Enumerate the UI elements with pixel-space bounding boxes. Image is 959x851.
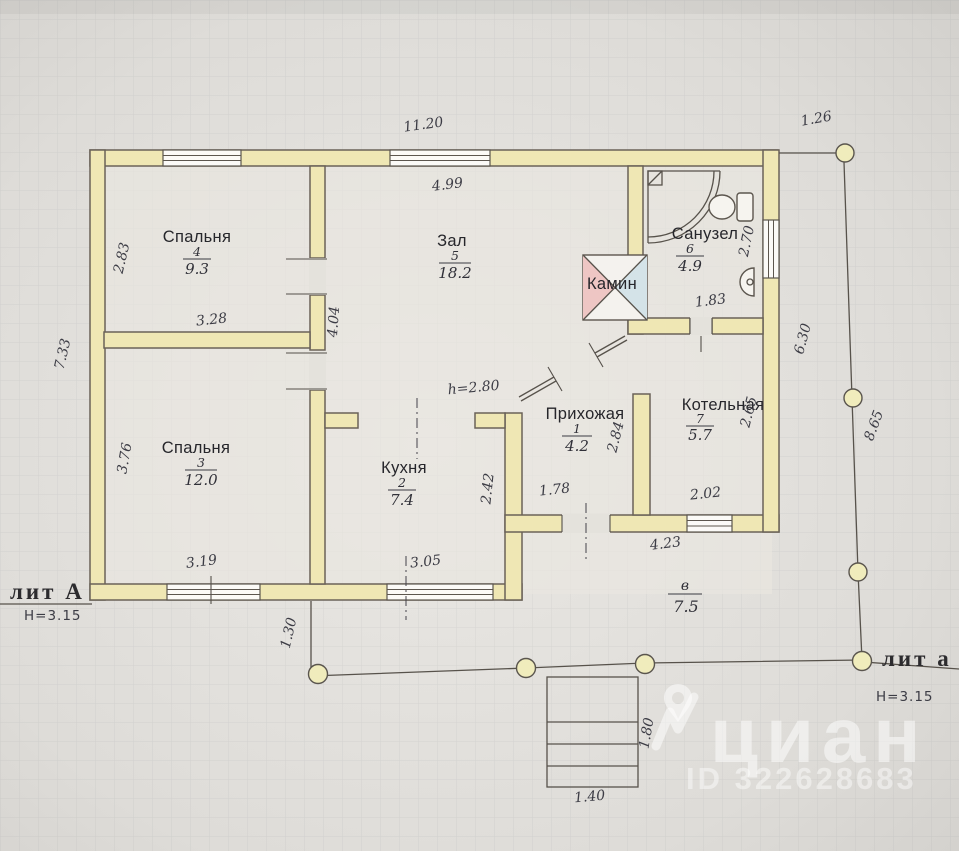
- room-area: 4.2: [564, 437, 589, 455]
- porch-column: [849, 563, 867, 581]
- room-area: 4.9: [677, 257, 702, 275]
- room-area: 7.4: [390, 491, 414, 509]
- dim-label: 1.40: [573, 788, 606, 807]
- porch-column: [517, 659, 536, 678]
- room-number: 3: [197, 455, 205, 470]
- window: [763, 220, 779, 278]
- room-number: 7: [696, 411, 704, 426]
- watermark-id: ID 322628683: [686, 761, 917, 796]
- wall-segment: [505, 413, 522, 600]
- porch-column: [844, 389, 862, 407]
- dim-label: 3.28: [195, 310, 228, 329]
- wall-segment: [325, 413, 358, 428]
- room-area: 12.0: [184, 471, 218, 489]
- room-name: Санузел: [672, 225, 738, 243]
- litera-main-height: Н=3.15: [24, 608, 82, 624]
- wall-segment: [763, 150, 779, 532]
- room-number: 1: [573, 421, 581, 436]
- room-area: 18.2: [438, 264, 471, 282]
- wall-segment: [505, 515, 779, 532]
- wall-segment: [90, 150, 105, 600]
- wall-segment: [475, 413, 505, 428]
- wall-segment: [104, 332, 310, 348]
- dim-label: 4.04: [325, 306, 343, 339]
- paper-top-shade: [0, 0, 959, 14]
- window: [390, 150, 490, 166]
- window: [687, 515, 732, 532]
- room-area: 7.5: [673, 597, 698, 616]
- room-area: 5.7: [688, 426, 712, 444]
- porch-column: [636, 655, 655, 674]
- room-number: 5: [451, 248, 459, 263]
- porch-column: [836, 144, 854, 162]
- porch-column: [309, 665, 328, 684]
- porch-column: [853, 652, 872, 671]
- dim-label: 2.42: [478, 472, 497, 506]
- dim-label: 3.05: [409, 552, 442, 571]
- litera-main-label: лит А: [10, 579, 85, 604]
- window: [387, 584, 493, 600]
- window: [163, 150, 241, 166]
- wall-segment: [310, 295, 325, 350]
- wall-segment: [633, 394, 650, 515]
- wall-segment: [310, 166, 325, 258]
- wall-segment: [712, 318, 763, 334]
- room-number: в: [681, 578, 689, 594]
- window: [167, 584, 260, 600]
- room-area: 9.3: [185, 260, 209, 278]
- room-name: Спальня: [162, 439, 230, 457]
- room-number: 6: [686, 241, 694, 256]
- floor-plan-photo: Спальня 4 9.3 Зал 5 18.2 Санузел 6 4.9 К…: [0, 0, 959, 851]
- room-number: 2: [397, 475, 406, 490]
- wall-segment: [310, 390, 325, 584]
- room-number: 4: [192, 244, 201, 259]
- dim-label: 1.78: [538, 480, 571, 499]
- fireplace-label: Камин: [587, 275, 637, 293]
- litera-porch-label: лит а: [882, 646, 952, 671]
- dim-label: 2.02: [688, 484, 722, 503]
